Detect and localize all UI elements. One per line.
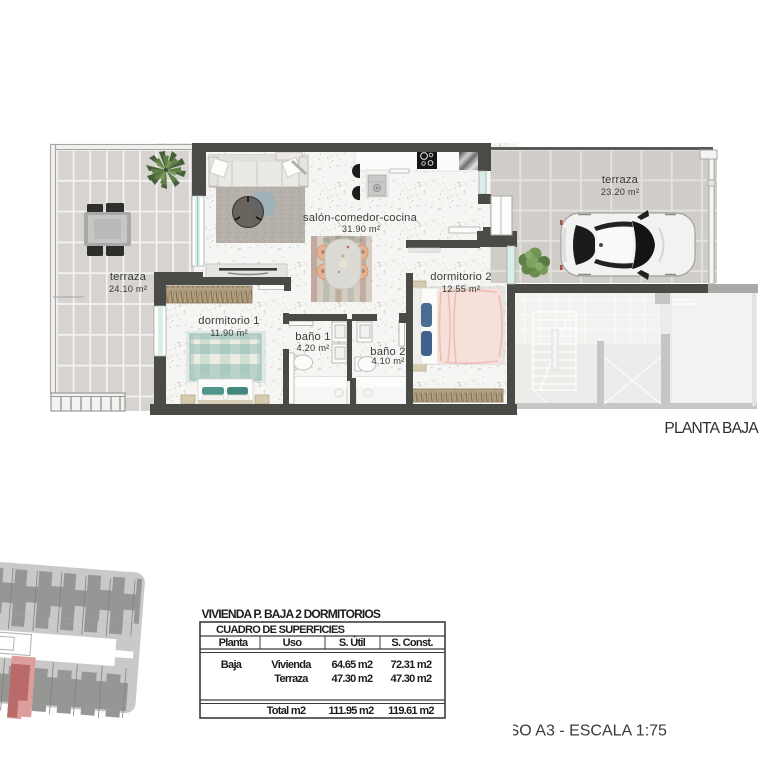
svg-text:119.61 m2: 119.61 m2 <box>388 705 434 717</box>
svg-text:baño 1: baño 1 <box>295 331 330 343</box>
svg-text:S. Const.: S. Const. <box>391 637 433 649</box>
svg-text:Terraza: Terraza <box>274 673 309 685</box>
svg-text:dormitorio 2: dormitorio 2 <box>430 271 491 283</box>
svg-text:4.10 m²: 4.10 m² <box>372 356 405 366</box>
svg-text:23.20 m²: 23.20 m² <box>601 187 639 197</box>
svg-text:24.10 m²: 24.10 m² <box>109 284 147 294</box>
svg-text:terraza: terraza <box>110 271 147 283</box>
svg-text:12.55 m²: 12.55 m² <box>442 284 480 294</box>
svg-text:11.90 m²: 11.90 m² <box>210 328 248 338</box>
svg-text:dormitorio 1: dormitorio 1 <box>198 315 259 327</box>
svg-text:47.30 m2: 47.30 m2 <box>391 673 432 685</box>
svg-text:S. Útil: S. Útil <box>339 636 366 649</box>
svg-text:Uso: Uso <box>283 637 303 649</box>
svg-text:111.95 m2: 111.95 m2 <box>328 705 374 717</box>
svg-text:Planta: Planta <box>219 637 249 649</box>
svg-text:72.31 m2: 72.31 m2 <box>391 659 432 671</box>
svg-text:Vivienda: Vivienda <box>271 659 312 671</box>
svg-text:64.65 m2: 64.65 m2 <box>332 659 373 671</box>
svg-text:CUADRO DE SUPERFICIES: CUADRO DE SUPERFICIES <box>216 624 345 636</box>
svg-text:Total m2: Total m2 <box>267 705 306 717</box>
svg-text:4.20 m²: 4.20 m² <box>297 343 330 353</box>
svg-text:Baja: Baja <box>221 659 243 671</box>
svg-text:salón-comedor-cocina: salón-comedor-cocina <box>303 212 418 224</box>
svg-text:terraza: terraza <box>602 174 639 186</box>
svg-text:PISO A3 - ESCALA 1:75: PISO A3 - ESCALA 1:75 <box>494 723 668 740</box>
svg-text:31.90 m²: 31.90 m² <box>342 224 380 234</box>
svg-text:47.30 m2: 47.30 m2 <box>332 673 373 685</box>
svg-text:VIVIENDA P. BAJA 2 DORMITORIOS: VIVIENDA P. BAJA 2 DORMITORIOS <box>202 607 381 621</box>
svg-text:PLANTA BAJA: PLANTA BAJA <box>664 420 759 437</box>
